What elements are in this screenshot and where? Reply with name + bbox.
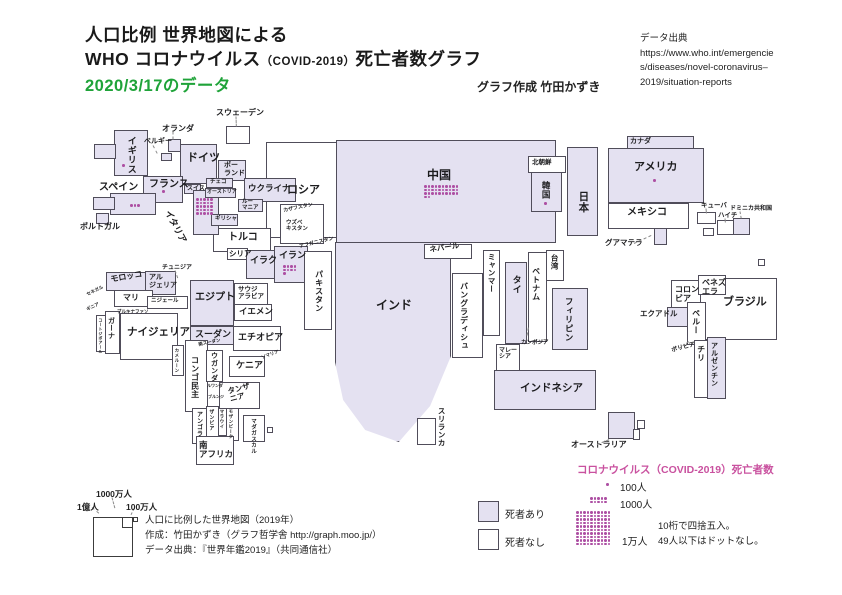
label-dominican-republic: ドミニカ共和国 xyxy=(730,206,772,212)
label-uganda: ウガンダ xyxy=(210,352,218,382)
ecuador-leader xyxy=(658,312,667,313)
dot xyxy=(597,543,600,546)
dot xyxy=(435,185,438,188)
dot xyxy=(594,536,597,539)
dot xyxy=(287,265,290,268)
dot xyxy=(587,525,590,528)
dot xyxy=(594,529,597,532)
label-vietnam: ベトナム xyxy=(531,267,540,301)
dot xyxy=(431,189,434,192)
region-island-e-madagascar xyxy=(267,427,273,433)
legend-has-deaths-swatch xyxy=(478,501,499,522)
dot xyxy=(162,190,165,193)
label-malaysia: マレー シア xyxy=(499,348,517,361)
dot xyxy=(200,205,203,208)
label-portugal: ポルトガル xyxy=(80,223,120,232)
dot xyxy=(608,539,611,542)
dot xyxy=(576,525,579,528)
dot xyxy=(601,539,604,542)
dot xyxy=(445,192,448,195)
dot xyxy=(428,192,431,195)
dot xyxy=(576,529,579,532)
region-nz-south xyxy=(633,429,640,440)
dot xyxy=(431,185,434,188)
dot xyxy=(601,518,604,521)
label-romania: ルー マニア xyxy=(242,200,259,212)
dot xyxy=(449,192,452,195)
dot xyxy=(601,532,604,535)
dot xyxy=(594,497,597,500)
map-caption-line2: 作成：竹田かずき（グラフ哲学舎 http://graph.moo.jp/） xyxy=(145,528,382,543)
region-uk-west xyxy=(94,144,116,159)
dot xyxy=(587,543,590,546)
dot xyxy=(583,518,586,521)
dot xyxy=(594,515,597,518)
dot xyxy=(583,515,586,518)
dot xyxy=(283,265,286,268)
dot xyxy=(590,501,593,504)
dot xyxy=(590,525,593,528)
label-guinea: ギニア xyxy=(86,302,100,312)
dot xyxy=(594,518,597,521)
dot xyxy=(604,522,607,525)
label-rwanda: ルワンダ xyxy=(207,384,223,388)
dot xyxy=(587,539,590,542)
label-niger: ニジェール xyxy=(151,299,179,305)
region-nz-north xyxy=(637,420,645,429)
dot xyxy=(594,511,597,514)
label-zambia: ザンビア xyxy=(208,409,213,431)
dot xyxy=(200,198,203,201)
dot xyxy=(290,269,293,272)
label-austria: オーストリア xyxy=(207,190,237,195)
dot xyxy=(438,185,441,188)
dot xyxy=(580,529,583,532)
region-belgium xyxy=(161,153,172,161)
dot xyxy=(583,525,586,528)
dot xyxy=(590,529,593,532)
dot xyxy=(601,501,604,504)
dot xyxy=(290,265,293,268)
region-sri-lanka xyxy=(417,418,436,445)
dot xyxy=(580,536,583,539)
dot xyxy=(583,522,586,525)
legend-rounding-note: 10桁で四捨五入。 xyxy=(658,518,735,532)
label-taiwan: 台湾 xyxy=(550,254,558,270)
label-madagascar: マダガスカル xyxy=(249,418,255,454)
dot xyxy=(580,525,583,528)
dot xyxy=(580,511,583,514)
label-indonesia: インドネシア xyxy=(520,383,583,394)
label-sri-lanka: スリランカ xyxy=(437,407,445,447)
label-mexico: メキシコ xyxy=(627,208,667,219)
map-caption-block: 人口に比例した世界地図（2019年） 作成：竹田かずき（グラフ哲学舎 http:… xyxy=(145,513,382,559)
label-spain: スペイン xyxy=(99,183,138,194)
label-senegal: セネガル xyxy=(86,285,104,297)
dot xyxy=(283,269,286,272)
label-india: インド xyxy=(376,299,412,312)
label-ghana: ガーナ xyxy=(107,317,115,340)
label-north-korea: 北朝鮮 xyxy=(532,159,552,166)
dot xyxy=(294,265,297,268)
label-ethiopia: エチオピア xyxy=(238,333,283,343)
sweden-leader xyxy=(236,116,237,126)
dot xyxy=(594,501,597,504)
label-italy: イタリア xyxy=(162,209,187,245)
label-syria: シリア xyxy=(229,250,252,258)
dot xyxy=(601,536,604,539)
dot xyxy=(601,543,604,546)
dot xyxy=(576,539,579,542)
region-india xyxy=(335,242,451,442)
dot xyxy=(587,532,590,535)
label-russia: ロシア xyxy=(287,185,320,197)
dot xyxy=(594,543,597,546)
dot xyxy=(604,529,607,532)
dot xyxy=(428,185,431,188)
dot xyxy=(576,543,579,546)
dot xyxy=(438,192,441,195)
dot xyxy=(601,511,604,514)
dot xyxy=(606,483,609,486)
region-spain-west xyxy=(93,197,115,210)
dot xyxy=(590,543,593,546)
dot xyxy=(608,522,611,525)
dot xyxy=(590,539,593,542)
dot xyxy=(203,205,206,208)
dot xyxy=(431,192,434,195)
label-turkey: トルコ xyxy=(228,233,258,244)
dot xyxy=(456,192,459,195)
dot xyxy=(604,497,607,500)
legend-10000-label: 1万人 xyxy=(622,533,648,548)
dot xyxy=(196,209,199,212)
scale-10million-label: 1000万人 xyxy=(96,488,132,500)
dot xyxy=(424,185,427,188)
dot xyxy=(122,164,125,167)
dot xyxy=(601,515,604,518)
dot xyxy=(452,185,455,188)
dot xyxy=(210,202,213,205)
netherlands-leader xyxy=(173,132,174,140)
dot xyxy=(583,536,586,539)
dot xyxy=(442,185,445,188)
dot xyxy=(196,202,199,205)
region-guatemala xyxy=(654,228,667,245)
label-czech: チェコ xyxy=(210,180,227,186)
legend-has-deaths-label: 死者あり xyxy=(505,506,545,521)
label-nigeria: ナイジェリア xyxy=(127,327,190,338)
dot xyxy=(576,522,579,525)
dot xyxy=(210,212,213,215)
dot xyxy=(424,189,427,192)
label-colombia: コロン ビア xyxy=(675,286,699,303)
dot xyxy=(604,518,607,521)
dot xyxy=(608,525,611,528)
dot xyxy=(580,518,583,521)
dot xyxy=(587,522,590,525)
label-ukraine: ウクライナ xyxy=(248,184,290,193)
dot xyxy=(608,543,611,546)
dot xyxy=(576,515,579,518)
label-malawi: マラウイ xyxy=(219,409,224,429)
dot xyxy=(608,536,611,539)
scale-box-10million xyxy=(122,517,133,528)
label-south-korea: 韓国 xyxy=(541,181,550,199)
dot xyxy=(608,515,611,518)
dot xyxy=(653,179,656,182)
label-iran: イラン xyxy=(279,251,306,261)
dot xyxy=(590,522,593,525)
label-tunisia: チュニジア xyxy=(162,265,192,271)
label-burkina-faso: ブルキナファソ xyxy=(117,310,149,315)
dot xyxy=(594,532,597,535)
infographic-canvas: 人口比例 世界地図による WHO コロナウイルス（COVID-2019）死亡者数… xyxy=(0,0,842,595)
dot xyxy=(597,511,600,514)
deaths-legend-title: コロナウイルス（COVID-2019）死亡者数 xyxy=(577,462,774,477)
label-sweden: スウェーデン xyxy=(216,109,264,118)
dot xyxy=(203,209,206,212)
dot xyxy=(604,539,607,542)
dot xyxy=(601,497,604,500)
dot xyxy=(597,529,600,532)
label-japan: 日本 xyxy=(577,191,588,213)
dot xyxy=(137,204,140,207)
label-bangladesh: バングラディシュ xyxy=(459,282,468,350)
dot xyxy=(207,205,210,208)
dot xyxy=(445,189,448,192)
region-caribbean-island xyxy=(758,259,765,266)
dot xyxy=(587,511,590,514)
dot xyxy=(210,205,213,208)
label-thailand: タイ xyxy=(511,275,521,294)
dot xyxy=(590,497,593,500)
scale-100million-label: 1億人 xyxy=(77,501,99,513)
dot xyxy=(210,209,213,212)
map-caption-line1: 人口に比例した世界地図（2019年） xyxy=(145,513,382,528)
dot xyxy=(442,192,445,195)
dot xyxy=(597,525,600,528)
dot xyxy=(597,497,600,500)
dot xyxy=(452,189,455,192)
region-cuba xyxy=(697,212,716,224)
dot xyxy=(196,205,199,208)
label-egypt: エジプト xyxy=(195,293,235,304)
dot xyxy=(594,525,597,528)
dot xyxy=(196,212,199,215)
dot xyxy=(576,532,579,535)
dot xyxy=(203,212,206,215)
region-usa xyxy=(608,148,704,203)
dot xyxy=(203,202,206,205)
dot xyxy=(449,185,452,188)
dot xyxy=(580,515,583,518)
dot xyxy=(604,536,607,539)
dot xyxy=(203,198,206,201)
dot xyxy=(210,198,213,201)
map-caption-line3: データ出典：『世界年鑑2019』（共同通信社） xyxy=(145,543,382,558)
region-dominican-republic xyxy=(733,218,750,235)
label-netherlands: オランダ xyxy=(162,125,194,134)
label-china: 中国 xyxy=(427,169,451,182)
label-kenya: ケニア xyxy=(236,361,263,371)
cuba-leader xyxy=(706,208,707,213)
label-poland: ポー ランド xyxy=(224,162,245,177)
label-angola: アンゴラ xyxy=(195,411,201,437)
dot xyxy=(597,536,600,539)
dot xyxy=(580,543,583,546)
region-cuba-sw xyxy=(703,228,714,236)
dot xyxy=(452,192,455,195)
dot xyxy=(590,515,593,518)
legend-1000-label: 1000人 xyxy=(620,496,652,511)
label-chile: チリ xyxy=(696,345,705,362)
dot xyxy=(594,522,597,525)
label-algeria: アル ジェリア xyxy=(149,274,177,289)
label-peru: ペルー xyxy=(691,309,700,335)
label-burundi: ブルンジ xyxy=(208,395,224,399)
label-cambodia: カンボジア xyxy=(521,341,549,347)
dot xyxy=(608,511,611,514)
label-argentina: アルゼンチン xyxy=(710,342,718,387)
dot xyxy=(604,543,607,546)
dot xyxy=(597,501,600,504)
dot xyxy=(576,511,579,514)
dot xyxy=(424,192,427,195)
dot xyxy=(207,198,210,201)
label-venezuela: ベネズ エラ xyxy=(702,279,726,296)
dot xyxy=(597,522,600,525)
label-yemen: イエメン xyxy=(239,307,273,316)
dot xyxy=(590,536,593,539)
dot xyxy=(438,189,441,192)
dot xyxy=(583,532,586,535)
dot xyxy=(207,212,210,215)
dot xyxy=(196,198,199,201)
label-brazil: ブラジル xyxy=(723,297,767,309)
dot xyxy=(604,511,607,514)
label-uzbekistan: ウズベ キスタン xyxy=(286,221,308,233)
legend-no-deaths-label: 死者なし xyxy=(505,534,545,549)
dot xyxy=(544,202,547,205)
dot xyxy=(590,511,593,514)
dot xyxy=(594,539,597,542)
dot xyxy=(601,529,604,532)
dot xyxy=(583,529,586,532)
dot xyxy=(590,532,593,535)
dot xyxy=(283,272,286,275)
dot xyxy=(587,518,590,521)
dot xyxy=(456,185,459,188)
dot xyxy=(445,185,448,188)
legend-100-label: 100人 xyxy=(620,479,647,494)
dot xyxy=(604,515,607,518)
dot xyxy=(200,212,203,215)
dot xyxy=(597,518,600,521)
label-philippines: フィリピン xyxy=(564,297,573,342)
dot xyxy=(597,539,600,542)
dot xyxy=(587,536,590,539)
label-belgium: ベルギー xyxy=(144,138,172,146)
label-mali: マリ xyxy=(123,294,139,303)
dot xyxy=(608,518,611,521)
label-uk: イギリス xyxy=(126,136,136,174)
dot xyxy=(608,529,611,532)
dot xyxy=(601,525,604,528)
label-south-africa: 南 アフリカ xyxy=(199,441,233,459)
label-switzerland: スイス xyxy=(187,186,205,192)
label-usa: アメリカ xyxy=(634,162,677,174)
dot xyxy=(590,518,593,521)
dot xyxy=(134,204,137,207)
dot xyxy=(597,532,600,535)
dot xyxy=(576,536,579,539)
dot xyxy=(130,204,133,207)
belgium-leader xyxy=(153,145,158,153)
label-somalia: ソマリア xyxy=(261,350,280,361)
legend-threshold-note: 49人以下はドットなし。 xyxy=(658,533,764,547)
label-mozambique: モザンビーク xyxy=(228,409,233,439)
dot xyxy=(580,522,583,525)
dot xyxy=(583,539,586,542)
dot xyxy=(601,522,604,525)
dot xyxy=(604,532,607,535)
label-cameroon: カメルーン xyxy=(174,348,179,373)
label-canada: カナダ xyxy=(630,138,651,146)
label-congo-dr: コンゴ民主 xyxy=(190,356,199,399)
region-sweden xyxy=(226,126,250,144)
dot xyxy=(580,532,583,535)
dot xyxy=(424,196,427,199)
scale-1million-label: 100万人 xyxy=(126,501,157,513)
dot xyxy=(608,532,611,535)
dot xyxy=(583,511,586,514)
label-iraq: イラク xyxy=(250,256,277,266)
label-myanmar: ミャンマー xyxy=(487,253,495,293)
region-australia xyxy=(608,412,635,439)
dominican-leader xyxy=(740,211,742,218)
label-pakistan: パキスタン xyxy=(314,270,323,313)
dot xyxy=(587,515,590,518)
label-saudi-arabia: サウジ アラビア xyxy=(238,286,264,300)
dot xyxy=(435,192,438,195)
label-greece: ギリシャ xyxy=(215,217,237,223)
dot xyxy=(576,518,579,521)
dot xyxy=(604,501,607,504)
label-haiti: ハイチ xyxy=(718,212,737,219)
dot xyxy=(604,525,607,528)
label-germany: ドイツ xyxy=(187,153,220,165)
dot xyxy=(587,529,590,532)
label-cote-divoire: コートジボアール xyxy=(98,318,102,354)
legend-no-deaths-swatch xyxy=(478,529,499,550)
label-france: フランス xyxy=(149,180,189,191)
dot xyxy=(597,515,600,518)
dot xyxy=(583,543,586,546)
dot xyxy=(580,539,583,542)
scale-box-1million xyxy=(133,517,138,522)
